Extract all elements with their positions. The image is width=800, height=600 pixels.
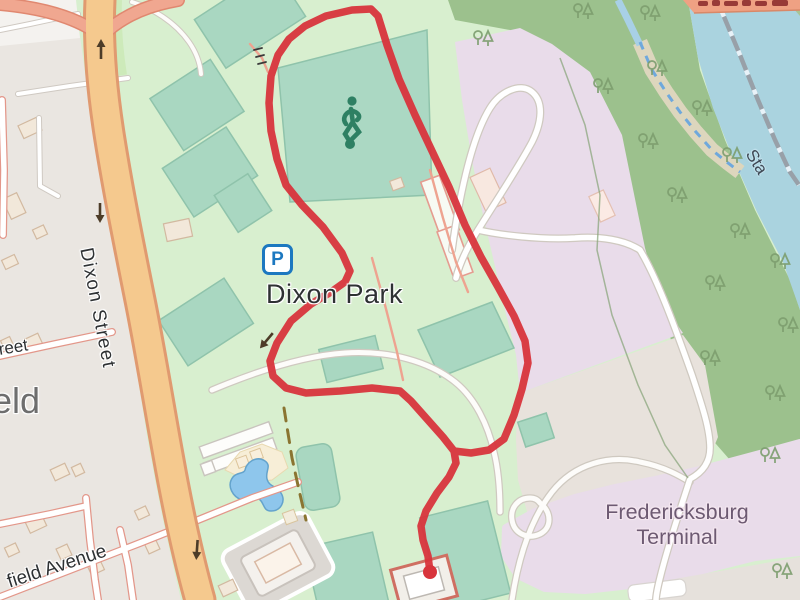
terminal-label-line1: Fredericksburg <box>567 500 787 525</box>
parking-icon: P <box>262 244 293 275</box>
map-canvas[interactable]: Dixon Park Dixon Street field Avenue tre… <box>0 0 800 600</box>
terminal-label-line2: Terminal <box>567 525 787 550</box>
terminal-label: Fredericksburg Terminal <box>567 500 787 550</box>
route-end-marker <box>423 565 437 579</box>
park-name-label: Dixon Park <box>266 279 403 310</box>
clipped-road-top-right <box>683 0 800 13</box>
place-fragment-label: eld <box>0 380 40 422</box>
